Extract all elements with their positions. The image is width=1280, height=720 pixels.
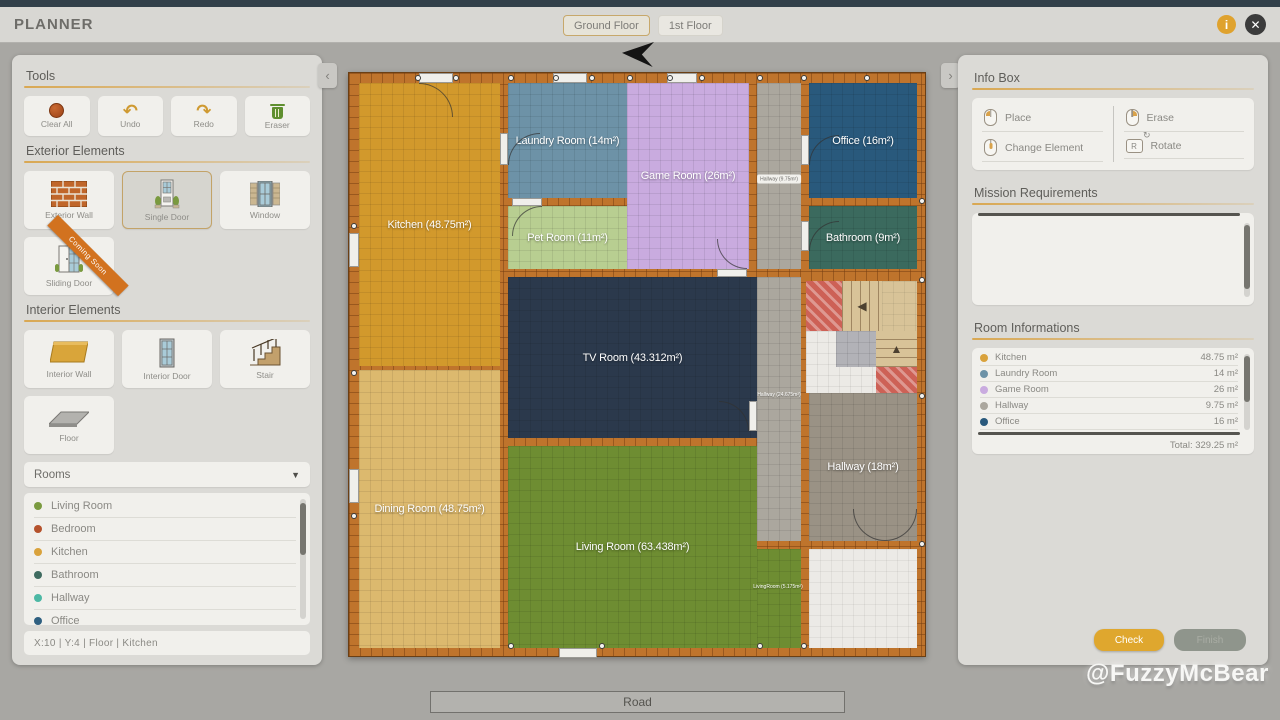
info-item-rotate: R Rotate [1124,136,1245,159]
interior-wall-label: Interior Wall [46,369,91,379]
stair-label: Stair [256,370,273,380]
rooms-list-scrollbar[interactable] [300,499,306,619]
place-label: Place [1005,112,1031,124]
scroll-shadow [978,213,1240,216]
room-info-name: Office [995,416,1020,427]
exterior-wall-label: Exterior Wall [45,210,93,220]
room-info-name: Kitchen [995,352,1027,363]
stairs-block [882,281,917,331]
total-area: Total: 329.25 m² [1170,440,1238,451]
room-info-scrollbar[interactable] [1244,354,1250,430]
divider [972,88,1254,90]
interior-wall-icon [50,340,88,366]
exterior-wall-icon [51,181,87,207]
wall-node-dot [508,643,514,649]
top-strip [0,0,1280,7]
interior-wall-button[interactable]: Interior Wall [24,330,114,388]
single-door-button[interactable]: Single Door [122,171,212,229]
room-option-label: Kitchen [51,546,88,558]
wall-node-dot [919,277,925,283]
wall-node-dot [919,393,925,399]
room-info-area: 48.75 m² [1201,352,1239,363]
floor-button[interactable]: Floor [24,396,114,454]
interior-section-title: Interior Elements [26,303,310,317]
page-title: PLANNER [14,16,94,33]
right-sidebar: Info Box Place Change Element Erase [958,55,1268,665]
room-label: Dining Room (48.75m²) [374,503,484,515]
room-color-dot [34,548,42,556]
room-empty-floor[interactable] [809,549,917,648]
room-color-dot [34,571,42,579]
close-icon[interactable]: ✕ [1245,14,1266,35]
tab-ground-floor[interactable]: Ground Floor [563,15,650,36]
mouse-wheel-icon [984,139,997,156]
room-color-dot [980,402,988,410]
redo-label: Redo [194,119,214,129]
room-label: Office (16m²) [832,135,893,147]
mouse-cursor [622,42,654,68]
wall-node-dot [919,198,925,204]
room-color-dot [34,594,42,602]
room-info-area: 14 m² [1214,368,1238,379]
exterior-wall-button[interactable]: Exterior Wall [24,171,114,229]
room-info-area: 9.75 m² [1206,400,1238,411]
room-color-dot [980,418,988,426]
room-option-living-room[interactable]: Living Room [34,495,296,518]
stairs-block: ▲ [876,331,917,367]
wall-node-dot [757,75,763,81]
room-info-row-game-room: Game Room26 m² [980,382,1238,398]
erase-label: Erase [1147,112,1174,124]
room-info-row-office: Office16 m² [980,414,1238,430]
header-bar: PLANNER Ground Floor 1st Floor i ✕ [0,7,1280,43]
divider [972,338,1254,340]
room-label: Living Room (63.438m²) [576,541,690,553]
room-info-area: 26 m² [1214,384,1238,395]
rooms-list: Living RoomBedroomKitchenBathroomHallway… [24,493,310,625]
room-info-name: Game Room [995,384,1049,395]
finish-button: Finish [1174,629,1246,651]
room-label: Kitchen (48.75m²) [387,219,471,231]
single-door-label: Single Door [145,212,189,222]
wall-node-dot [589,75,595,81]
info-item-place: Place [982,106,1103,132]
wall-opening [749,401,757,431]
room-info-row-hallway: Hallway9.75 m² [980,398,1238,414]
panel-collapse-left-icon[interactable]: ‹ [318,63,337,88]
room-info-name: Laundry Room [995,368,1057,379]
stairs-block [806,281,842,331]
key-r-icon: R [1126,139,1143,153]
clear-all-icon [49,103,64,118]
floor-plan[interactable]: Kitchen (48.75m²)Dining Room (48.75m²)La… [348,72,926,657]
chevron-down-icon: ▼ [291,470,300,480]
stairs-direction-arrow: ◀ [857,300,866,312]
mission-requirements-panel [972,213,1254,305]
wall-node-dot [508,75,514,81]
clear-all-label: Clear All [41,119,73,129]
wall-opening [717,269,747,277]
rooms-dropdown[interactable]: Rooms ▼ [24,462,310,487]
wall-opening [500,133,508,165]
undo-label: Undo [120,119,140,129]
stairs-block: ◀ [842,281,882,331]
eraser-label: Eraser [265,120,290,130]
wall-node-dot [453,75,459,81]
room-color-dot [980,370,988,378]
wall-node-dot [351,513,357,519]
room-label: Game Room (26m²) [641,170,736,182]
left-sidebar: Tools Clear All ↶ Undo ↷ Redo Eraser Ext… [12,55,322,665]
sliding-door-label: Sliding Door [46,278,92,288]
exterior-section-title: Exterior Elements [26,144,310,158]
room-hallway-mid[interactable] [757,277,801,541]
room-option-hallway[interactable]: Hallway [34,587,296,610]
room-kitchen[interactable]: Kitchen (48.75m²) [359,83,500,366]
wall-opening [801,221,809,251]
room-option-bedroom[interactable]: Bedroom [34,518,296,541]
wall-node-dot [553,75,559,81]
wall-node-dot [757,643,763,649]
room-color-dot [34,502,42,510]
info-item-erase: Erase [1124,106,1245,132]
tiny-room-label: LivingRoom (5.175m²) [753,584,802,590]
sliding-door-button[interactable]: Sliding Door Coming Soon [24,237,114,295]
stairs-block [876,367,917,393]
mouse-right-click-icon [1126,109,1139,126]
divider [24,161,310,163]
interior-door-icon [158,338,176,368]
total-separator [978,432,1240,435]
wall-node-dot [919,541,925,547]
room-dining-room[interactable]: Dining Room (48.75m²) [359,370,500,648]
window-label: Window [250,210,280,220]
room-informations-title: Room Informations [974,321,1254,335]
stair-icon [248,339,282,367]
change-element-label: Change Element [1005,142,1083,154]
tab-1st-floor[interactable]: 1st Floor [658,15,723,36]
mission-scrollbar[interactable] [1244,223,1250,297]
wall-opening [559,648,597,658]
status-bar: X:10 | Y:4 | Floor | Kitchen [24,631,310,655]
room-living-strip[interactable] [757,549,801,648]
redo-button[interactable]: ↷ Redo [171,96,237,136]
info-icon[interactable]: i [1217,15,1236,34]
wall-node-dot [627,75,633,81]
room-living-room[interactable]: Living Room (63.438m²) [508,446,757,648]
wall-node-dot [667,75,673,81]
room-label: TV Room (43.312m²) [583,352,683,364]
room-option-label: Living Room [51,500,112,512]
eraser-button[interactable]: Eraser [245,96,311,136]
room-info-row-kitchen: Kitchen48.75 m² [980,350,1238,366]
room-label: Hallway (18m²) [827,461,898,473]
planner-app: PLANNER Ground Floor 1st Floor i ✕ Tools… [0,0,1280,720]
rooms-dropdown-label: Rooms [34,469,70,481]
tools-section-title: Tools [26,69,310,83]
room-option-bathroom[interactable]: Bathroom [34,564,296,587]
interior-door-label: Interior Door [143,371,190,381]
wall-node-dot [415,75,421,81]
room-color-dot [980,386,988,394]
wall-node-dot [864,75,870,81]
wall-node-dot [351,223,357,229]
room-option-office[interactable]: Office [34,610,296,625]
stairs-block [836,331,876,367]
redo-icon: ↷ [196,104,211,118]
wall-opening [349,233,359,267]
interior-door-button[interactable]: Interior Door [122,330,212,388]
room-option-label: Bedroom [51,523,96,535]
tiny-room-label: Hallway (9.75m²) [757,175,801,184]
eraser-icon [272,107,283,119]
room-color-dot [34,617,42,625]
watermark: @FuzzyMcBear [1086,660,1269,688]
wall-node-dot [801,643,807,649]
stair-button[interactable]: Stair [220,330,310,388]
room-color-dot [34,525,42,533]
divider [24,86,310,88]
room-info-row-laundry-room: Laundry Room14 m² [980,366,1238,382]
wall-opening [419,73,453,83]
wall-opening [512,198,542,206]
undo-icon: ↶ [123,104,138,118]
room-info-area: 16 m² [1214,416,1238,427]
stairs-direction-arrow: ▲ [891,343,903,355]
divider [24,320,310,322]
window-button[interactable]: Window [220,171,310,229]
floor-label: Floor [59,433,78,443]
window-icon [250,181,280,207]
wall-node-dot [351,370,357,376]
floor-tabs: Ground Floor 1st Floor [563,15,723,36]
wall-node-dot [801,75,807,81]
undo-button[interactable]: ↶ Undo [98,96,164,136]
rotate-label: Rotate [1151,140,1182,152]
info-box-card: Place Change Element Erase R Rotate [972,98,1254,170]
wall-node-dot [699,75,705,81]
room-option-label: Bathroom [51,569,99,581]
wall-opening [349,469,359,503]
room-option-label: Office [51,615,80,625]
single-door-icon [154,179,180,209]
wall-opening [801,135,809,165]
room-option-label: Hallway [51,592,90,604]
mouse-left-click-icon [984,109,997,126]
info-item-change-element: Change Element [982,136,1103,162]
wall-node-dot [599,643,605,649]
clear-all-button[interactable]: Clear All [24,96,90,136]
room-informations-panel: Kitchen48.75 m²Laundry Room14 m²Game Roo… [972,348,1254,454]
road-label: Road [430,691,845,713]
room-option-kitchen[interactable]: Kitchen [34,541,296,564]
room-color-dot [980,354,988,362]
check-button[interactable]: Check [1094,629,1164,651]
mission-requirements-title: Mission Requirements [974,186,1254,200]
floor-icon [49,408,89,430]
divider [972,203,1254,205]
tiny-room-label: Hallway (24.675m²) [757,392,800,398]
room-info-name: Hallway [995,400,1028,411]
info-box-title: Info Box [974,71,1254,85]
